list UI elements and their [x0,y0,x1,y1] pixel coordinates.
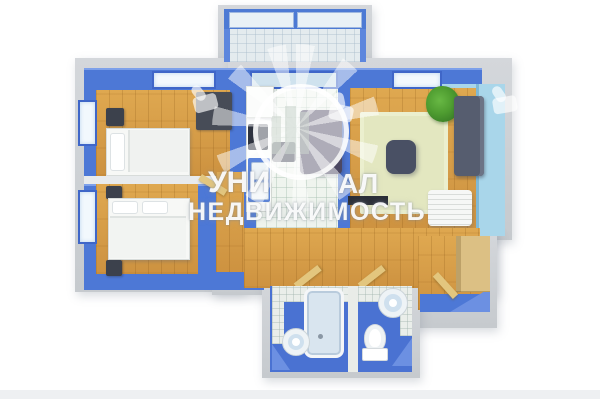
sofa [454,96,484,176]
single-bed-pillow [110,133,125,171]
bedroom1-nightstand [106,108,124,126]
bathtub [304,288,344,358]
dining-table [300,110,342,174]
bedroom2-nightstand-bottom [106,260,122,276]
kitchen-stool [272,142,296,162]
double-bed-blanket [110,216,186,258]
page-edge-shadow [0,390,600,399]
cooktop [248,124,268,150]
bathroom-divider-wall [348,286,358,372]
bedroom1-top-window [152,71,216,89]
livingroom-window [392,71,442,89]
double-bed-pillow-right [142,201,168,214]
floorplan-render: УНИ АЛ НЕДВИЖИМОСТЬ [0,0,600,403]
balcony-floor [228,29,362,62]
sink-basin-top [251,162,269,180]
balcony-side-wall-left [224,29,230,62]
slatted-bench [428,190,472,226]
balcony-window-pane-right [297,12,362,28]
single-bed-blanket [128,130,188,172]
sink-basin-bottom [251,182,269,200]
double-bed-pillow-left [112,201,138,214]
toilet-tank [362,348,388,361]
fridge [246,86,274,118]
bedroom2-left-window [78,190,97,244]
toilet-sink [378,288,408,318]
bedroom1-wardrobe [196,92,232,130]
coffee-table [386,140,416,174]
bathtub-drain [318,334,323,339]
balcony-side-wall-right [360,29,366,62]
bathroom-sink [282,328,310,356]
balcony-window-pane-left [229,12,294,28]
bedroom1-left-window [78,100,97,146]
tv-bench [348,196,388,205]
hall-wardrobe [456,236,490,292]
